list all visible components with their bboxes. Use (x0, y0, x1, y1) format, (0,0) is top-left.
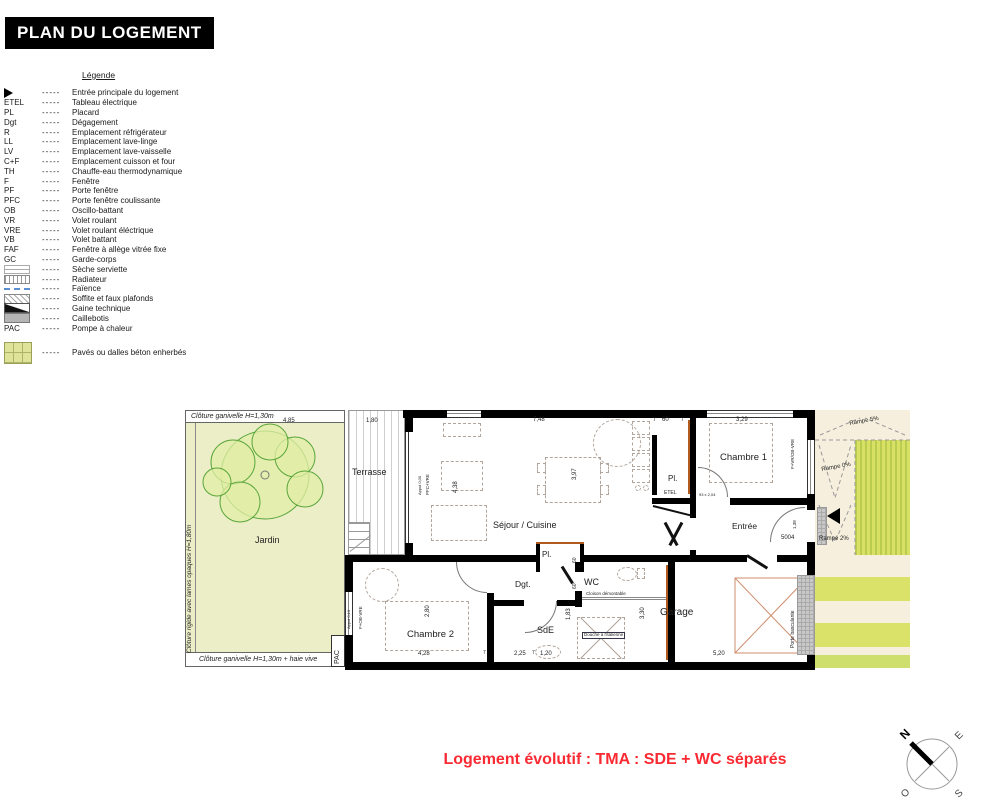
driveway-pavers (815, 555, 910, 655)
dim-3-29: 3,29 (736, 417, 748, 423)
legend-label: Dégagement (72, 118, 260, 127)
legend-separator: ----- (42, 206, 72, 215)
compass-rose: N E O S (893, 723, 971, 800)
legend-label: Tableau électrique (72, 98, 260, 107)
dining-table-outline (545, 457, 601, 503)
legend-label: Porte fenêtre (72, 186, 260, 195)
floor-plan: Clôture ganivelle H=1,30mClôture rigide … (185, 405, 915, 675)
legend-separator: ----- (42, 216, 72, 225)
compass-s: S (953, 787, 966, 800)
legend-symbol: VR (4, 216, 42, 225)
wall (481, 410, 707, 418)
dim-7-48: 7,48 (533, 417, 545, 423)
sofa-outline (431, 505, 487, 541)
legend-row: FAF ----- Fenêtre à allège vitrée fixe (4, 245, 260, 255)
faience-icon (4, 288, 30, 290)
door-size-tag: 93 x 2,04 (699, 493, 715, 497)
wall (575, 591, 582, 607)
dim-7-c: 7 (483, 651, 486, 656)
legend-separator: ----- (42, 108, 72, 117)
legend-symbol (4, 265, 42, 274)
legend-separator: ----- (42, 118, 72, 127)
legend-separator: ----- (42, 348, 72, 357)
legend-separator: ----- (42, 226, 72, 235)
room-label-garage: Garage (660, 608, 693, 618)
dim-60-a: 60 (573, 557, 578, 563)
legend-label: Emplacement lave-linge (72, 137, 260, 146)
wall (494, 600, 524, 606)
legend-label: Emplacement lave-vaisselle (72, 147, 260, 156)
legend-label: Placard (72, 108, 260, 117)
legend-separator: ----- (42, 196, 72, 205)
room-label-chambre1: Chambre 1 (720, 453, 767, 463)
legend-row: ----- Faïence (4, 284, 260, 294)
ramp-label-2: Rampé 2% (819, 536, 849, 542)
legend-separator: ----- (42, 245, 72, 254)
legend-label: Volet roulant éléctrique (72, 226, 260, 235)
dim-7-b: 7 (681, 418, 684, 423)
room-label-sde: SdE (537, 626, 554, 635)
legend-label: Emplacement cuisson et four (72, 157, 260, 166)
wall (405, 555, 540, 562)
footer-note: Logement évolutif : TMA : SDE + WC sépar… (400, 751, 830, 769)
legend-row: ----- Soffite et faux plafonds (4, 294, 260, 304)
dim-2-80: 2,80 (425, 605, 431, 617)
legend-row: R ----- Emplacement réfrigérateur (4, 127, 260, 137)
garage-door-slab (797, 575, 815, 655)
legend-symbol: LV (4, 147, 42, 156)
legend-row: GC ----- Garde-corps (4, 255, 260, 265)
label-cloison-demontable: Cloison démontable (586, 592, 626, 597)
legend-label: Pavés ou dalles béton enherbés (72, 348, 260, 357)
legend-label: Volet roulant (72, 216, 260, 225)
window-glyph (807, 440, 815, 494)
legend-symbol: PFC (4, 196, 42, 205)
kitchen-appliance-outline (632, 469, 650, 483)
dim-7-a: 7 (653, 418, 656, 423)
legend-symbol: R (4, 128, 42, 137)
dim-1-20: 1,20 (540, 651, 552, 657)
window-tag-ch1: F+VR/OB-VRE (791, 439, 796, 469)
wall (345, 555, 353, 592)
legend-separator: ----- (42, 147, 72, 156)
legend-separator: ----- (42, 284, 72, 293)
wall (345, 635, 353, 670)
dim-7-d: 7 (532, 651, 535, 656)
legend-row: ----- Pavés ou dalles béton enherbés (4, 341, 260, 365)
chair-outline (600, 485, 609, 495)
door-leaf (746, 554, 768, 569)
legend-separator: ----- (42, 167, 72, 176)
legend-row: Dgt ----- Dégagement (4, 117, 260, 127)
label-etel: ETEL (664, 491, 677, 496)
ramp-guides (815, 410, 910, 555)
legend-symbol (4, 303, 42, 313)
window-glyph (707, 410, 793, 418)
chair-outline (537, 485, 546, 495)
wall (807, 410, 815, 440)
legend: Légende ----- Entrée principale du logem… (4, 70, 260, 365)
legend-label: Entrée principale du logement (72, 88, 260, 97)
legend-row: ----- Sèche serviette (4, 264, 260, 274)
dim-2-25: 2,25 (514, 651, 526, 657)
room-label-entree: Entrée (732, 522, 757, 531)
sofa-outline (441, 461, 483, 491)
chair-outline (537, 463, 546, 473)
paves-icon (4, 342, 32, 364)
wall (580, 544, 584, 572)
legend-separator: ----- (42, 235, 72, 244)
legend-separator: ----- (42, 88, 72, 97)
wall (777, 555, 815, 562)
wall (652, 435, 657, 495)
radiateur-icon (4, 275, 30, 284)
soffite-icon (4, 294, 30, 304)
window-glyph (447, 410, 481, 418)
legend-label: Radiateur (72, 275, 260, 284)
legend-row: ETEL ----- Tableau électrique (4, 98, 260, 108)
label-porte-basculante: Porte basculante (791, 610, 796, 648)
legend-label: Faïence (72, 284, 260, 293)
compass-o: O (899, 787, 912, 800)
legend-label: Fenêtre à allège vitrée fixe (72, 245, 260, 254)
legend-separator: ----- (42, 177, 72, 186)
legend-separator: ----- (42, 324, 72, 333)
armchair-outline (365, 568, 399, 602)
legend-row: PFC ----- Porte fenêtre coulissante (4, 196, 260, 206)
dim-5-20: 5,20 (713, 651, 725, 657)
legend-label: Fenêtre (72, 177, 260, 186)
legend-heading: Légende (82, 70, 260, 80)
legend-row: PAC ----- Pompe à chaleur (4, 323, 260, 333)
fence-label-bottom: Clôture ganivelle H=1,30m + haie vive (199, 656, 317, 663)
partition-diagonal (653, 505, 692, 517)
legend-label: Sèche serviette (72, 265, 260, 274)
legend-label: Emplacement réfrigérateur (72, 128, 260, 137)
wall (536, 544, 540, 572)
legend-symbol (4, 342, 42, 364)
legend-label: Pompe à chaleur (72, 324, 260, 333)
dim-3-30: 3,30 (640, 607, 646, 619)
dim-4-38: 4,38 (453, 481, 459, 493)
room-label-sejour: Séjour / Cuisine (493, 521, 557, 530)
tree-icon (195, 417, 345, 542)
wall (690, 550, 696, 562)
hob-outline (635, 485, 641, 491)
legend-label: Caillebotis (72, 314, 260, 323)
wall (582, 555, 677, 562)
wall (730, 498, 807, 505)
legend-symbol (4, 313, 42, 323)
legend-label: Soffite et faux plafonds (72, 294, 260, 303)
legend-separator: ----- (42, 137, 72, 146)
legend-row: C+F ----- Emplacement cuisson et four (4, 157, 260, 167)
legend-symbol: F (4, 177, 42, 186)
legend-separator: ----- (42, 314, 72, 323)
room-label-pl1: Pl. (668, 475, 677, 483)
toilet-tank-outline (637, 568, 645, 579)
legend-row: PF ----- Porte fenêtre (4, 186, 260, 196)
grass-strip (815, 655, 910, 668)
legend-list: ----- Entrée principale du logement ETEL… (4, 88, 260, 365)
legend-label: Gaine technique (72, 304, 260, 313)
legend-symbol: PF (4, 186, 42, 195)
legend-row: F ----- Fenêtre (4, 176, 260, 186)
wall (807, 494, 815, 510)
legend-label: Porte fenêtre coulissante (72, 196, 260, 205)
legend-row: TH ----- Chauffe-eau thermodynamique (4, 166, 260, 176)
legend-row: ----- Caillebotis (4, 313, 260, 323)
legend-symbol: ETEL (4, 98, 42, 107)
toilet-outline (617, 567, 637, 581)
legend-row: ----- Gaine technique (4, 304, 260, 314)
faience-line (536, 542, 584, 544)
page: PLAN DU LOGEMENT Légende ----- Entrée pr… (0, 0, 1000, 800)
dim-4-85: 4,85 (283, 418, 295, 424)
legend-row: ----- Entrée principale du logement (4, 88, 260, 98)
legend-row: VRE ----- Volet roulant éléctrique (4, 225, 260, 235)
door-leaf (561, 566, 574, 585)
room-label-terrasse: Terrasse (352, 468, 387, 477)
dim-1-83: 1,83 (566, 608, 572, 620)
dim-60-top: 60 (662, 417, 669, 423)
sliding-door-glyph (405, 432, 413, 543)
door-arc (456, 562, 487, 593)
legend-symbol (4, 275, 42, 284)
room-label-wc: WC (584, 578, 599, 587)
dim-60-b: 60 (573, 583, 578, 589)
legend-symbol: VRE (4, 226, 42, 235)
legend-symbol: VB (4, 235, 42, 244)
seche-serviette-icon (4, 265, 30, 274)
demountable-partition (582, 597, 668, 600)
legend-row: LL ----- Emplacement lave-linge (4, 137, 260, 147)
legend-label: Garde-corps (72, 255, 260, 264)
legend-row: VB ----- Volet battant (4, 235, 260, 245)
legend-symbol: OB (4, 206, 42, 215)
window-tag-ch2-f: F+OB-VRE (359, 606, 364, 629)
page-title: PLAN DU LOGEMENT (5, 17, 214, 49)
label-douche-italienne: Douche à l'italienne (582, 632, 625, 639)
legend-symbol: C+F (4, 157, 42, 166)
legend-symbol: PL (4, 108, 42, 117)
caillebotis-icon (4, 313, 30, 323)
dim-3-97: 3,97 (572, 468, 578, 480)
window-tag-sejour-appui: Appui 0,00 (418, 476, 422, 495)
legend-row: ----- Radiateur (4, 274, 260, 284)
legend-separator: ----- (42, 157, 72, 166)
legend-symbol (4, 288, 42, 290)
room-label-pl2: Pl. (542, 551, 551, 559)
legend-separator: ----- (42, 275, 72, 284)
entry-arrow-icon (4, 88, 13, 98)
wall (345, 662, 815, 670)
legend-label: Chauffe-eau thermodynamique (72, 167, 260, 176)
wall (345, 555, 413, 562)
wall (675, 555, 747, 562)
legend-row: PL ----- Placard (4, 108, 260, 118)
hob-outline (643, 485, 649, 491)
legend-symbol: Dgt (4, 118, 42, 127)
room-label-chambre2: Chambre 2 (407, 630, 454, 640)
faience-line (688, 420, 690, 494)
legend-row: LV ----- Emplacement lave-vaisselle (4, 147, 260, 157)
dim-4-28: 4,28 (418, 651, 430, 657)
main-entrance-arrow-icon (827, 508, 840, 524)
legend-separator: ----- (42, 294, 72, 303)
legend-row: VR ----- Volet roulant (4, 215, 260, 225)
legend-row: OB ----- Oscillo-battant (4, 206, 260, 216)
fence-label-top: Clôture ganivelle H=1,30m (191, 413, 274, 420)
label-pac: PAC (334, 650, 341, 664)
fence-label-left: Clôture rigide avec lames opaques H=1,80… (187, 525, 194, 653)
legend-symbol: FAF (4, 245, 42, 254)
dim-1-80: 1,80 (366, 418, 378, 424)
dim-1-38: 1,38 (793, 520, 798, 529)
room-label-dgt: Dgt. (515, 580, 531, 589)
legend-separator: ----- (42, 186, 72, 195)
legend-separator: ----- (42, 98, 72, 107)
gaine-icon (4, 303, 30, 313)
kitchen-appliance-outline (632, 437, 650, 451)
window-tag-ch2-appui: Appui 0,10 (347, 610, 351, 629)
compass-e: E (953, 729, 966, 742)
legend-symbol (4, 88, 42, 98)
kitchen-appliance-outline (632, 453, 650, 467)
legend-separator: ----- (42, 265, 72, 274)
legend-symbol: LL (4, 137, 42, 146)
legend-separator: ----- (42, 255, 72, 264)
legend-label: Oscillo-battant (72, 206, 260, 215)
sideboard-outline (443, 423, 481, 437)
legend-symbol: TH (4, 167, 42, 176)
wall (652, 498, 696, 504)
wall (405, 410, 413, 432)
legend-separator: ----- (42, 304, 72, 313)
room-label-jardin: Jardin (255, 536, 280, 545)
legend-symbol (4, 294, 42, 304)
kitchen-appliance-outline (632, 421, 650, 435)
legend-label: Volet battant (72, 235, 260, 244)
legend-symbol: PAC (4, 324, 42, 333)
compass-n: N (897, 726, 913, 742)
legend-separator: ----- (42, 128, 72, 137)
legend-symbol: GC (4, 255, 42, 264)
wall (487, 593, 494, 669)
window-tag-sejour-pfc: PFC+VRE (426, 474, 431, 495)
label-5004: 5004 (781, 535, 794, 541)
